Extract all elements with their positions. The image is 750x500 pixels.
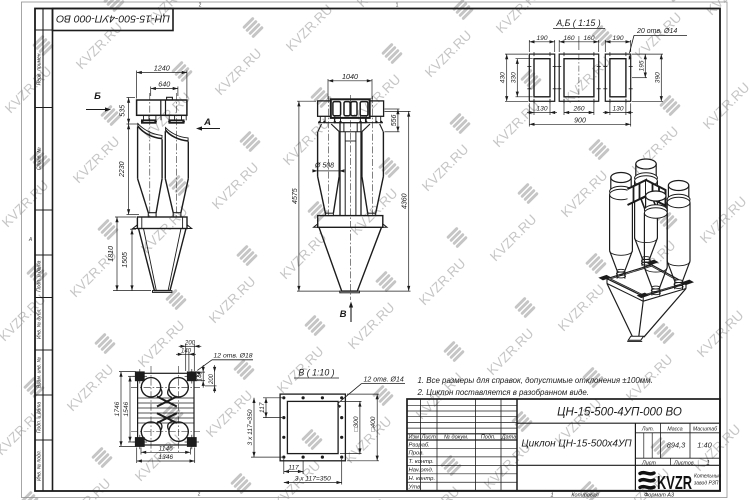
svg-text:Перв. примен.: Перв. примен. [37, 52, 43, 85]
svg-text:ЦН-15-500-4УП-000 ВО: ЦН-15-500-4УП-000 ВО [56, 13, 170, 25]
svg-text:1146: 1146 [159, 446, 174, 453]
svg-text:1040: 1040 [342, 72, 358, 81]
svg-text:Подп.: Подп. [481, 434, 496, 440]
svg-text:№ докум.: № докум. [444, 434, 469, 440]
svg-text:А: А [203, 117, 211, 128]
svg-text:160: 160 [583, 35, 594, 42]
svg-text:140: 140 [197, 371, 203, 382]
svg-text:Листов: Листов [673, 460, 694, 466]
svg-text:900: 900 [574, 118, 586, 125]
svg-text:1. Все размеры для справок, до: 1. Все размеры для справок, допустимые о… [418, 376, 653, 385]
svg-text:Подп. и дата: Подп. и дата [37, 260, 43, 292]
svg-text:4360: 4360 [402, 193, 409, 209]
svg-text:894,3: 894,3 [667, 441, 686, 450]
svg-text:1: 1 [550, 493, 553, 499]
svg-text:130: 130 [536, 106, 547, 113]
svg-text:Изм: Изм [409, 434, 420, 440]
svg-text:12 отв. Ø14: 12 отв. Ø14 [364, 376, 404, 383]
svg-text:□400: □400 [370, 416, 377, 431]
svg-text:2. Циклон поставляется в разоб: 2. Циклон поставляется в разобранном вид… [417, 388, 589, 397]
svg-text:Т. контр.: Т. контр. [409, 459, 434, 465]
svg-text:Масштаб: Масштаб [693, 427, 718, 433]
svg-text:3 х 117=350: 3 х 117=350 [295, 476, 331, 483]
svg-text:390: 390 [654, 72, 661, 83]
svg-text:Дата: Дата [501, 434, 517, 440]
svg-text:1810: 1810 [108, 246, 115, 262]
svg-text:Копировал: Копировал [571, 493, 598, 499]
svg-text:2: 2 [199, 3, 202, 9]
svg-text:200: 200 [184, 340, 196, 346]
svg-text:Разраб.: Разраб. [409, 442, 430, 448]
svg-text:А: А [28, 237, 33, 243]
svg-text:Справ. №: Справ. № [37, 147, 43, 170]
svg-text:Циклон ЦН-15-500х4УП: Циклон ЦН-15-500х4УП [521, 439, 632, 450]
svg-text:260: 260 [572, 106, 584, 113]
svg-text:556: 556 [391, 114, 398, 126]
svg-text:1746: 1746 [114, 401, 121, 416]
svg-text:Утв.: Утв. [408, 485, 422, 491]
svg-text:Пров.: Пров. [409, 451, 425, 457]
svg-text:ЦН-15-500-4УП-000 ВО: ЦН-15-500-4УП-000 ВО [557, 406, 682, 418]
svg-text:Подп. и дата: Подп. и дата [37, 402, 43, 434]
svg-text:200: 200 [209, 373, 215, 385]
svg-text:1: 1 [396, 3, 399, 9]
svg-text:535: 535 [119, 105, 126, 117]
svg-text:2: 2 [198, 492, 201, 498]
svg-text:Лист: Лист [420, 434, 436, 440]
svg-text:117: 117 [288, 465, 299, 472]
svg-text:140: 140 [181, 349, 192, 355]
svg-text:Масса: Масса [667, 427, 682, 433]
svg-text:117: 117 [259, 402, 266, 413]
svg-text:640: 640 [158, 80, 170, 89]
svg-text:190: 190 [612, 35, 623, 42]
svg-text:1: 1 [706, 460, 709, 466]
svg-text:Н. контр.: Н. контр. [409, 476, 436, 482]
svg-text:1505: 1505 [122, 252, 129, 268]
svg-text:160: 160 [563, 35, 574, 42]
svg-text:Котельный: Котельный [694, 473, 721, 480]
svg-text:Ø 508: Ø 508 [314, 163, 334, 170]
svg-text:KVZR: KVZR [657, 472, 692, 493]
svg-text:20 отв. Ø14: 20 отв. Ø14 [636, 28, 677, 35]
svg-text:Взам. инв. №: Взам. инв. № [37, 356, 43, 388]
svg-text:□300: □300 [353, 416, 360, 431]
svg-text:1546: 1546 [123, 401, 130, 416]
svg-text:В: В [340, 309, 347, 320]
svg-text:1346: 1346 [158, 454, 173, 461]
svg-text:330: 330 [510, 72, 517, 83]
svg-text:4575: 4575 [292, 188, 299, 204]
svg-text:Б: Б [94, 91, 101, 102]
svg-text:Нач.отд.: Нач.отд. [409, 468, 434, 474]
svg-text:430: 430 [500, 72, 507, 83]
svg-text:Лист: Лист [641, 460, 656, 466]
svg-text:130: 130 [612, 106, 623, 113]
svg-text:1240: 1240 [154, 64, 170, 73]
svg-text:195: 195 [638, 60, 645, 71]
svg-text:Формат А3: Формат А3 [644, 493, 675, 499]
svg-text:190: 190 [536, 35, 547, 42]
svg-text:завод РЗП: завод РЗП [693, 481, 719, 487]
svg-text:А,Б ( 1:15 ): А,Б ( 1:15 ) [555, 18, 600, 28]
svg-text:Лит.: Лит. [641, 427, 654, 433]
svg-text:В ( 1:10 ): В ( 1:10 ) [298, 368, 334, 378]
svg-text:Инв. № подл.: Инв. № подл. [37, 450, 43, 481]
svg-text:3 х 117=350: 3 х 117=350 [247, 409, 254, 445]
svg-text:2230: 2230 [119, 161, 126, 178]
svg-text:1:40: 1:40 [697, 441, 712, 450]
svg-text:12 отв. Ø18: 12 отв. Ø18 [214, 353, 253, 360]
svg-text:Инв. № дубл.: Инв. № дубл. [37, 308, 43, 339]
